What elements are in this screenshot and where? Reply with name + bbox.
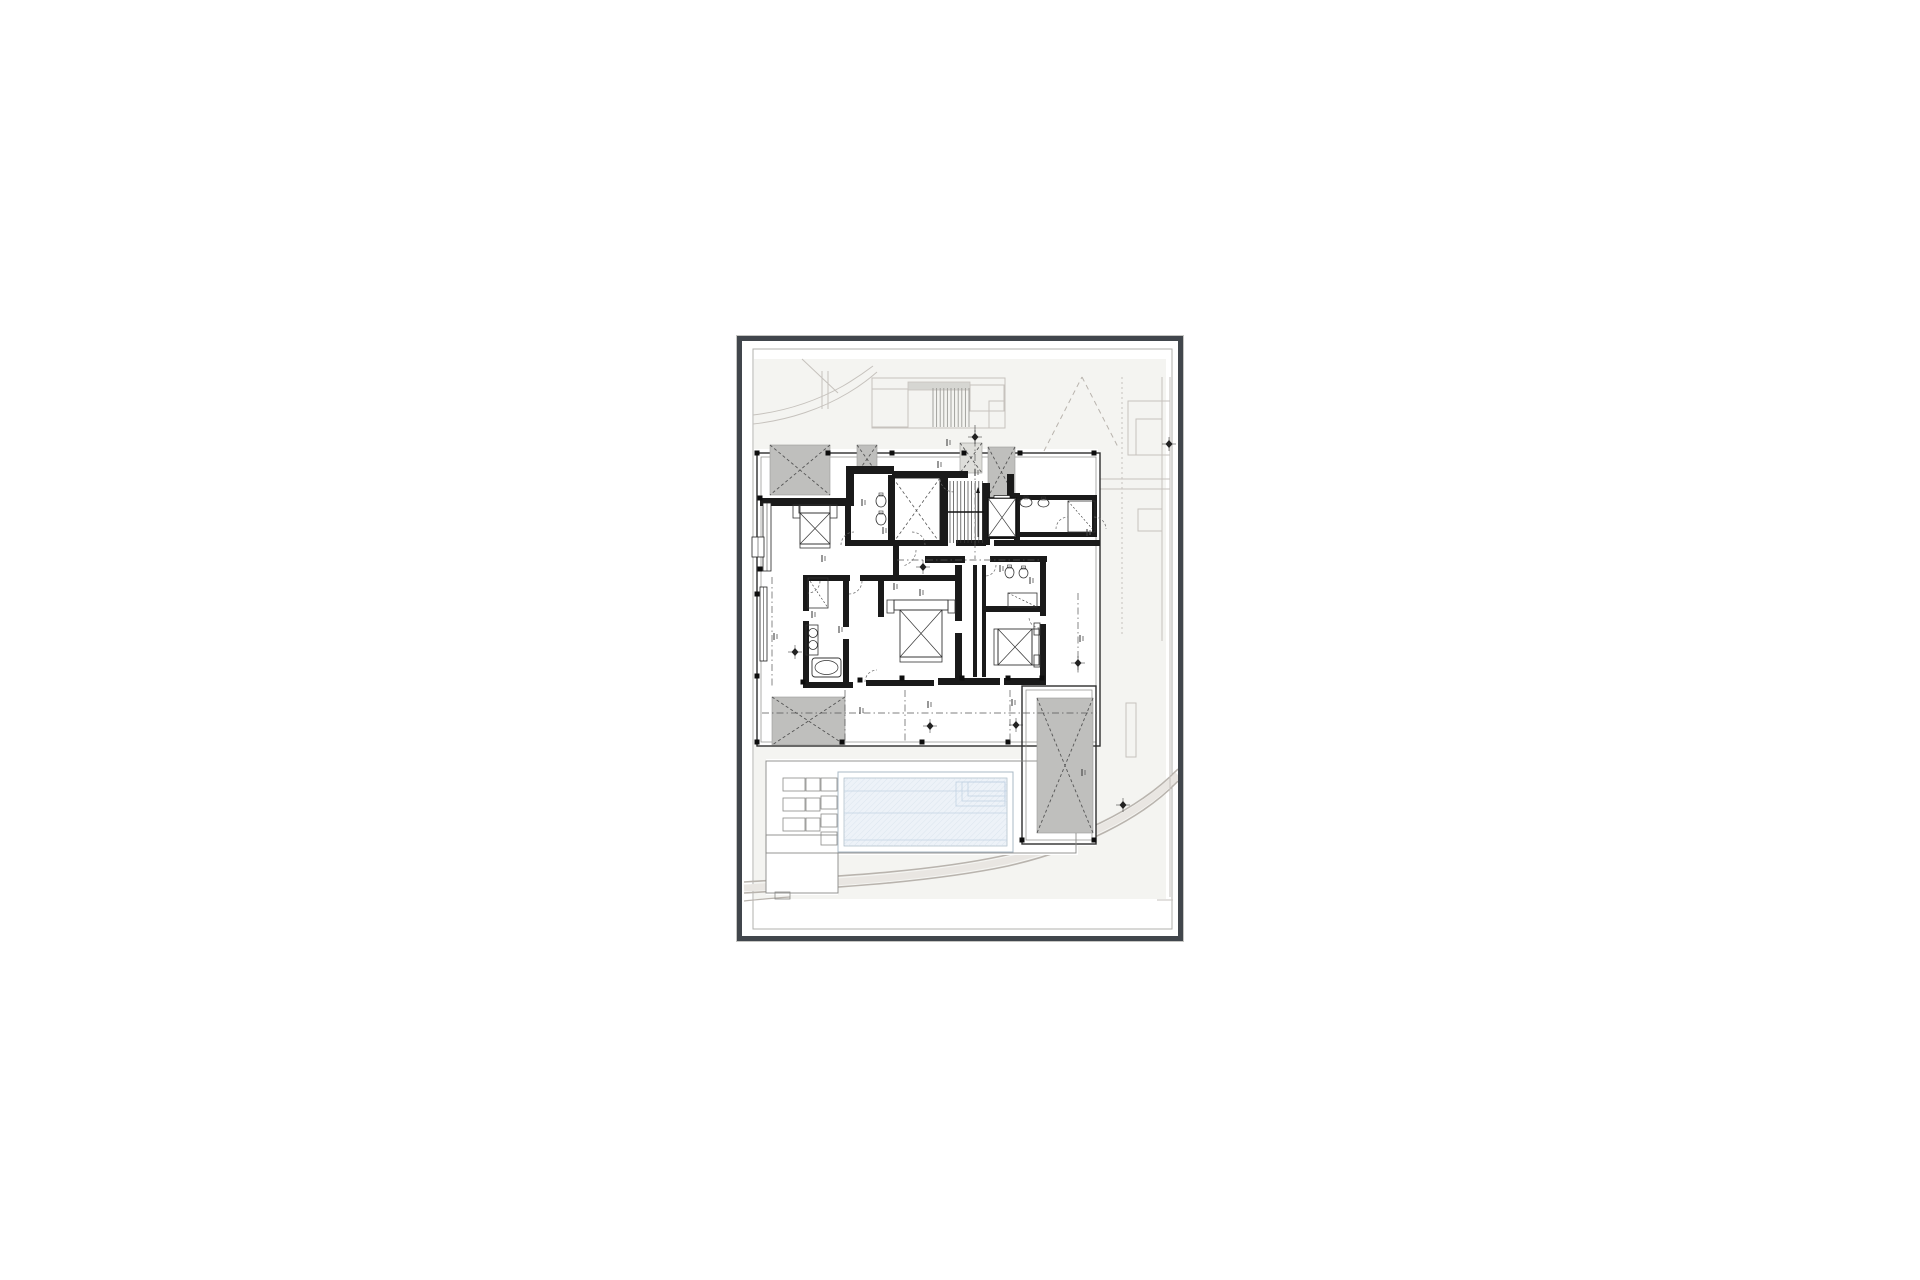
entry-canopy	[908, 382, 970, 390]
wall-post	[755, 740, 760, 745]
wall	[845, 501, 851, 546]
wall-post	[1092, 838, 1097, 843]
wall-post	[755, 674, 760, 679]
wall-post	[1092, 451, 1097, 456]
wall	[866, 680, 934, 686]
wall-post	[890, 451, 895, 456]
wall	[805, 682, 853, 688]
pool-hatch	[844, 778, 1007, 846]
wall	[955, 565, 962, 621]
wall	[850, 540, 890, 546]
elevator-door	[994, 496, 1010, 499]
wall-post	[840, 740, 845, 745]
wall	[990, 556, 1047, 562]
wall-post	[1020, 838, 1025, 843]
toilet	[876, 495, 886, 507]
wall	[1007, 474, 1014, 498]
toilet	[1005, 567, 1014, 578]
wall-post	[1006, 676, 1011, 681]
toilet	[1019, 568, 1028, 578]
wall	[925, 556, 965, 563]
wall-post	[758, 567, 763, 572]
wall	[860, 575, 960, 581]
page-background	[0, 0, 1920, 1280]
drawing-sheet	[737, 336, 1183, 941]
wall	[892, 471, 968, 478]
wall	[994, 540, 1100, 546]
wall	[973, 565, 977, 677]
wall-post	[900, 676, 905, 681]
wall-post	[962, 451, 967, 456]
building-area	[766, 835, 838, 895]
wall-post	[858, 678, 863, 683]
wall	[843, 581, 849, 627]
wall-post	[920, 740, 925, 745]
wall-post	[826, 451, 831, 456]
wall-post	[758, 496, 763, 501]
wall	[955, 633, 962, 682]
wall	[1016, 532, 1097, 537]
wall	[888, 475, 895, 545]
floor-plan-svg	[742, 341, 1178, 936]
wall	[878, 575, 884, 617]
wall-post	[801, 680, 806, 685]
wall-post	[755, 592, 760, 597]
wall	[940, 477, 948, 545]
wall	[938, 678, 1000, 685]
wall	[982, 565, 986, 677]
wall	[843, 639, 849, 688]
wall-post	[1040, 676, 1045, 681]
toilet	[876, 513, 886, 525]
wall-post	[755, 451, 760, 456]
wall	[846, 466, 894, 474]
wall	[1040, 624, 1046, 682]
toilet	[1020, 498, 1032, 507]
wall-post	[1018, 451, 1023, 456]
wall-post	[960, 676, 965, 681]
wall	[1040, 560, 1046, 616]
